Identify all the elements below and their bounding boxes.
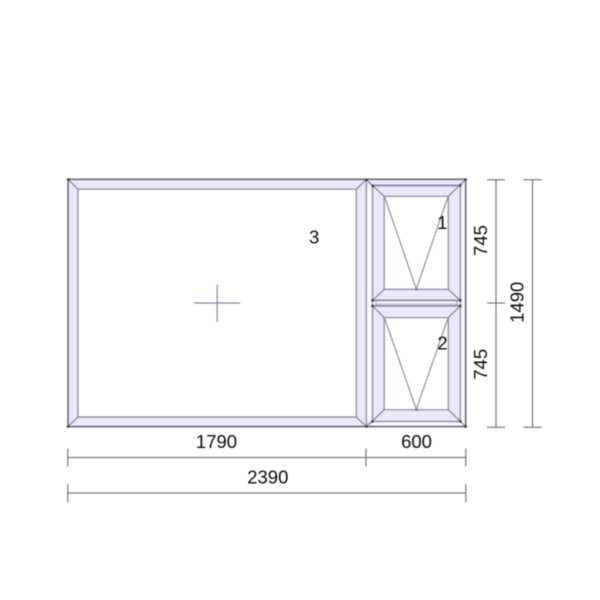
svg-text:1490: 1490 bbox=[506, 282, 527, 323]
svg-text:1: 1 bbox=[437, 212, 447, 233]
svg-text:2: 2 bbox=[437, 333, 447, 354]
svg-text:1790: 1790 bbox=[196, 431, 237, 452]
svg-text:745: 745 bbox=[470, 349, 491, 380]
svg-text:3: 3 bbox=[309, 227, 319, 248]
svg-text:745: 745 bbox=[470, 225, 491, 256]
svg-text:600: 600 bbox=[401, 431, 432, 452]
svg-text:2390: 2390 bbox=[247, 466, 288, 487]
